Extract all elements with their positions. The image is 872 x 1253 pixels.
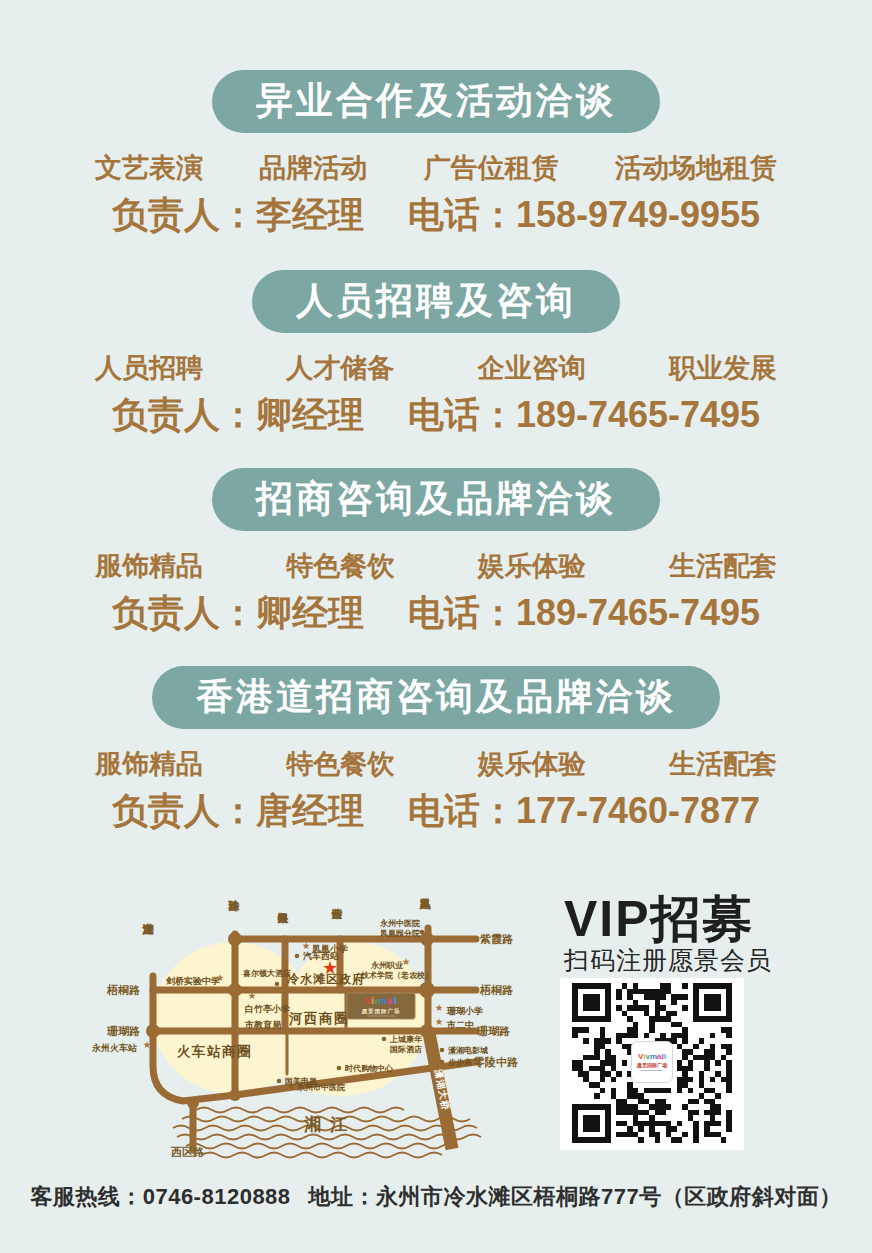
contact-phone: 电话：158-9749-9955 xyxy=(408,194,760,235)
star-marker-icon: ★ xyxy=(435,1002,444,1013)
phone-label: 电话： xyxy=(408,592,516,633)
section-title-banner: 异业合作及活动洽谈 xyxy=(212,70,660,133)
map-road-label: 潇湘大道 xyxy=(142,923,155,935)
qr-center-logo: Vivmall 愿景国际广场 xyxy=(631,1041,673,1083)
contact-row: 负责人：唐经理 电话：177-7460-7877 xyxy=(0,790,872,831)
map-road-label: 凤凰路 xyxy=(419,898,432,910)
category-item: 服饰精品 xyxy=(95,552,203,582)
contact-phone: 电话：177-7460-7877 xyxy=(408,790,760,831)
category-item: 特色餐饮 xyxy=(286,750,394,780)
map-landmark-label: 上城康年 xyxy=(389,1035,423,1044)
map-landmark-label: 永州火车站 xyxy=(91,1042,137,1053)
category-item: 品牌活动 xyxy=(259,154,367,184)
map-landmark-label: 永州中医院 xyxy=(379,918,421,928)
category-row: 文艺表演 品牌活动 广告位租赁 活动场地租赁 xyxy=(95,154,777,184)
map-landmark-label: 火车站商圈 xyxy=(177,1044,252,1059)
river-wave xyxy=(202,1153,442,1158)
section-title-banner: 香港道招商咨询及品牌洽谈 xyxy=(152,666,720,729)
map-landmark-label: 喜尔顿大酒店 xyxy=(242,968,291,978)
river-wave xyxy=(186,1144,458,1149)
section-title-banner: 人员招聘及咨询 xyxy=(252,270,620,333)
category-item: 企业咨询 xyxy=(478,354,586,384)
phone-label: 电话： xyxy=(408,394,516,435)
dot-marker-icon xyxy=(289,1085,294,1090)
map-road-label: 梧桐路 xyxy=(479,984,513,996)
dot-marker-icon xyxy=(337,1066,342,1071)
mall-logo-subtext: 愿景国际广场 xyxy=(637,1062,667,1069)
map-road-label: 梧桐路 xyxy=(106,984,140,996)
map-landmark-label: 永州职业 xyxy=(370,960,404,970)
category-item: 生活配套 xyxy=(669,750,777,780)
mall-logo-text: Vivmall xyxy=(638,1053,666,1062)
category-item: 娱乐体验 xyxy=(478,750,586,780)
contact-row: 负责人：李经理 电话：158-9749-9955 xyxy=(0,194,872,235)
map-landmark-label: 技术学院（老农校） xyxy=(360,971,433,980)
vip-recruit-subtitle: 扫码注册愿景会员 xyxy=(564,944,772,977)
contact-label: 负责人： xyxy=(112,592,256,633)
contact-label: 负责人： xyxy=(112,790,256,831)
poster-page: 异业合作及活动洽谈 文艺表演 品牌活动 广告位租赁 活动场地租赁 负责人：李经理… xyxy=(0,0,872,1253)
map-road-label: 西区路 xyxy=(170,1146,204,1158)
category-item: 广告位租赁 xyxy=(424,154,559,184)
river-wave xyxy=(177,1135,481,1140)
section-leasing: 招商咨询及品牌洽谈 服饰精品 特色餐饮 娱乐体验 生活配套 负责人：卿经理 电话… xyxy=(0,468,872,634)
category-item: 职业发展 xyxy=(669,354,777,384)
contact-label: 负责人： xyxy=(112,394,256,435)
dot-marker-icon xyxy=(295,954,300,959)
map-road-label: 银象路 xyxy=(277,912,290,924)
star-marker-icon: ★ xyxy=(402,956,411,967)
map-landmark-label: 步步高 xyxy=(448,1057,472,1067)
map-landmark-label: 市二中 xyxy=(446,1020,474,1030)
star-marker-icon: ★ xyxy=(248,990,257,1001)
category-item: 特色餐饮 xyxy=(286,552,394,582)
map-landmark-label: 永州市中医院 xyxy=(296,1082,346,1092)
category-item: 服饰精品 xyxy=(95,750,203,780)
contact-name: 唐经理 xyxy=(256,790,364,831)
star-marker-icon: ★ xyxy=(143,1039,152,1050)
contact-person: 负责人：卿经理 xyxy=(112,394,364,435)
section-hk-road-leasing: 香港道招商咨询及品牌洽谈 服饰精品 特色餐饮 娱乐体验 生活配套 负责人：唐经理… xyxy=(0,666,872,832)
map-landmark-label: 白竹亭小学 xyxy=(245,1004,290,1014)
section-recruitment: 人员招聘及咨询 人员招聘 人才储备 企业咨询 职业发展 负责人：卿经理 电话：1… xyxy=(0,270,872,436)
phone-number: 189-7465-7495 xyxy=(516,394,760,435)
hotline-label: 客服热线： xyxy=(30,1184,143,1209)
category-row: 服饰精品 特色餐饮 娱乐体验 生活配套 xyxy=(95,750,777,780)
mall-name-on-map: 愿景国际广场 xyxy=(362,1007,401,1015)
phone-number: 158-9749-9955 xyxy=(516,194,760,235)
address-text: 永州市冷水滩区梧桐路777号（区政府斜对面） xyxy=(376,1184,842,1209)
category-row: 服饰精品 特色餐饮 娱乐体验 生活配套 xyxy=(95,552,777,582)
category-item: 文艺表演 xyxy=(95,154,203,184)
mall-logo-divider xyxy=(641,1070,663,1071)
map-landmark-label: 冷水滩区政府 xyxy=(287,972,365,986)
contact-row: 负责人：卿经理 电话：189-7465-7495 xyxy=(0,394,872,435)
river-wave xyxy=(196,1108,404,1113)
phone-label: 电话： xyxy=(408,790,516,831)
footer-contact-line: 客服热线：0746-8120888地址：永州市冷水滩区梧桐路777号（区政府斜对… xyxy=(0,1182,872,1212)
vip-recruit-title: VIP招募 xyxy=(564,886,755,953)
dot-marker-icon xyxy=(440,1060,445,1065)
phone-number: 177-7460-7877 xyxy=(516,790,760,831)
contact-name: 卿经理 xyxy=(256,592,364,633)
map-svg: 潇湘大道珍珠路银象路紫金路凤凰路紫霞路梧桐路梧桐路珊瑚路珊瑚路零陵中路西区路★凤… xyxy=(78,858,550,1194)
category-item: 人才储备 xyxy=(286,354,394,384)
contact-person: 负责人：李经理 xyxy=(112,194,364,235)
contact-row: 负责人：卿经理 电话：189-7465-7495 xyxy=(0,592,872,633)
category-item: 活动场地租赁 xyxy=(615,154,777,184)
map-road-label: 珊瑚路 xyxy=(476,1025,510,1037)
phone-number: 189-7465-7495 xyxy=(516,592,760,633)
map-landmark-label: 剑桥实验中学 xyxy=(165,976,220,986)
map-landmark-label: 市教育局 xyxy=(244,1019,281,1030)
category-row: 人员招聘 人才储备 企业咨询 职业发展 xyxy=(95,354,777,384)
contact-person: 负责人：唐经理 xyxy=(112,790,364,831)
location-map: 潇湘大道珍珠路银象路紫金路凤凰路紫霞路梧桐路梧桐路珊瑚路珊瑚路零陵中路西区路★凤… xyxy=(78,858,550,1194)
contact-person: 负责人：卿经理 xyxy=(112,592,364,633)
contact-label: 负责人： xyxy=(112,194,256,235)
phone-label: 电话： xyxy=(408,194,516,235)
star-marker-icon: ★ xyxy=(435,1016,444,1027)
contact-name: 卿经理 xyxy=(256,394,364,435)
map-landmark-label: 河西商圈 xyxy=(288,1011,349,1026)
map-landmark-label: 湘江 xyxy=(303,1115,356,1134)
category-item: 人员招聘 xyxy=(95,354,203,384)
star-marker-icon: ★ xyxy=(302,940,311,951)
map-landmark-label: 潇湘电影城 xyxy=(448,1046,488,1055)
hotline-number: 0746-8120888 xyxy=(143,1184,291,1209)
map-landmark-label: 珊瑚小学 xyxy=(446,1006,483,1016)
contact-phone: 电话：189-7465-7495 xyxy=(408,394,760,435)
mall-marker-box: Vivmall愿景国际广场 xyxy=(347,993,415,1019)
mall-logo-on-map: Vivmall xyxy=(365,996,396,1006)
category-item: 生活配套 xyxy=(669,552,777,582)
map-landmark-label: 时代购物中心 xyxy=(345,1064,394,1073)
dot-marker-icon xyxy=(277,1079,282,1084)
map-road-label: 珍珠路 xyxy=(228,900,241,912)
map-landmark-label: 国际酒店 xyxy=(390,1044,422,1054)
address-label: 地址： xyxy=(309,1184,377,1209)
contact-name: 李经理 xyxy=(256,194,364,235)
map-road-label: 紫金路 xyxy=(331,908,344,920)
dot-marker-icon xyxy=(275,982,280,987)
section-cooperation: 异业合作及活动洽谈 文艺表演 品牌活动 广告位租赁 活动场地租赁 负责人：李经理… xyxy=(0,70,872,236)
map-road-label: 零陵中路 xyxy=(473,1056,518,1068)
map-landmark-label: 凤凰园分院 xyxy=(379,929,421,938)
section-title-banner: 招商咨询及品牌洽谈 xyxy=(212,468,660,531)
dot-marker-icon xyxy=(440,1048,445,1053)
category-item: 娱乐体验 xyxy=(478,552,586,582)
dot-marker-icon xyxy=(420,930,425,935)
dot-marker-icon xyxy=(382,1037,387,1042)
contact-phone: 电话：189-7465-7495 xyxy=(408,592,760,633)
map-road-label: 珊瑚路 xyxy=(106,1025,140,1037)
map-road-label: 紫霞路 xyxy=(479,933,513,945)
